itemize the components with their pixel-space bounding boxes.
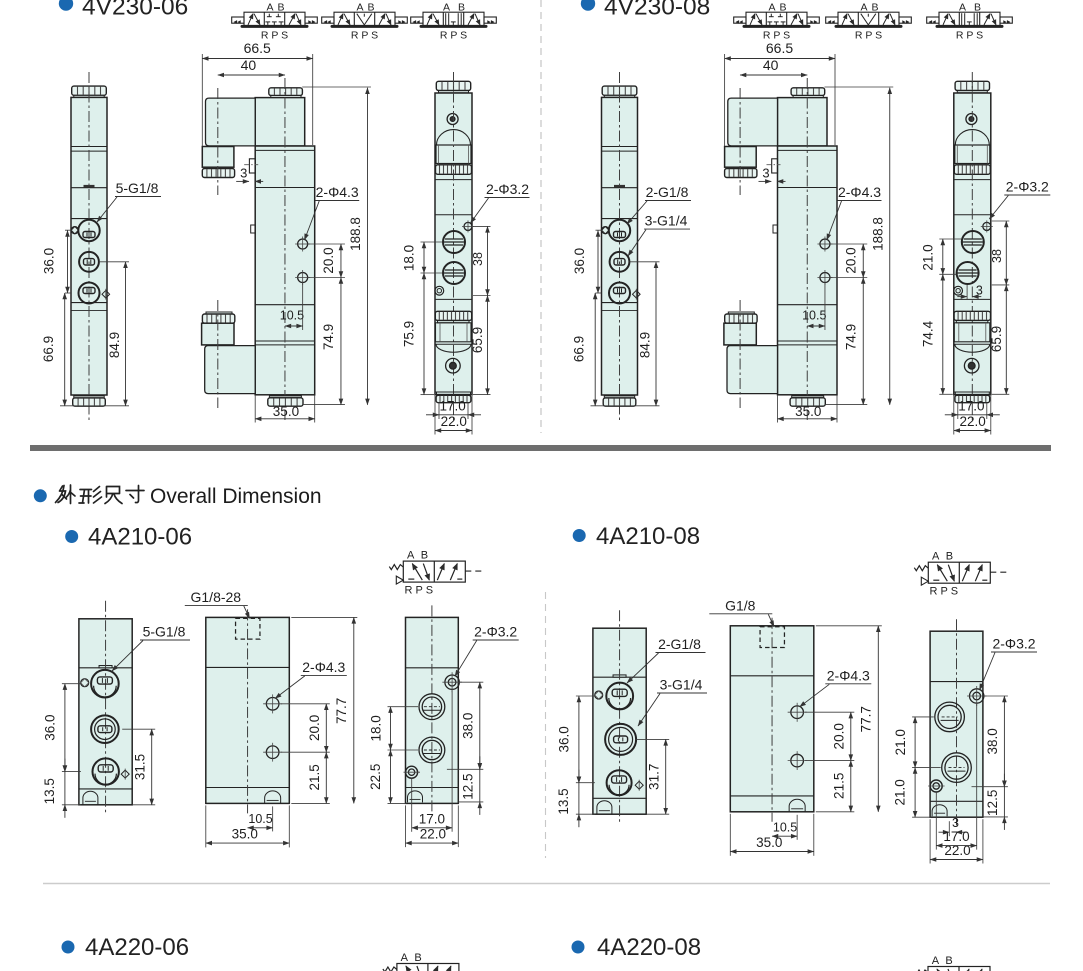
svg-text:A: A: [959, 1, 966, 13]
svg-text:40: 40: [763, 57, 779, 73]
svg-text:84.9: 84.9: [107, 332, 122, 358]
svg-text:17.0: 17.0: [439, 399, 465, 414]
svg-text:B: B: [367, 1, 374, 13]
svg-text:22.0: 22.0: [420, 827, 446, 842]
svg-text:2-Φ4.3: 2-Φ4.3: [838, 184, 881, 200]
svg-text:A: A: [768, 1, 775, 13]
svg-text:75.9: 75.9: [402, 321, 417, 347]
svg-text:13.5: 13.5: [556, 788, 571, 814]
svg-text:G1/8: G1/8: [725, 597, 756, 613]
svg-text:R P S: R P S: [440, 29, 467, 41]
svg-text:84.9: 84.9: [638, 332, 653, 358]
svg-text:4A220-08: 4A220-08: [597, 934, 701, 961]
svg-text:R P S: R P S: [855, 29, 882, 41]
svg-text:B: B: [974, 1, 981, 13]
svg-text:5-G1/8: 5-G1/8: [116, 180, 159, 196]
svg-text:2-Φ3.2: 2-Φ3.2: [486, 181, 529, 197]
svg-text:17.0: 17.0: [419, 811, 445, 826]
svg-text:B: B: [277, 1, 284, 13]
svg-text:35.0: 35.0: [273, 404, 299, 419]
svg-text:4A220-06: 4A220-06: [85, 934, 189, 961]
svg-text:2-Φ4.3: 2-Φ4.3: [302, 659, 345, 675]
svg-text:65.9: 65.9: [989, 326, 1004, 352]
svg-text:35.0: 35.0: [795, 404, 821, 419]
svg-text:3: 3: [240, 166, 247, 181]
svg-text:A: A: [266, 1, 273, 13]
svg-text:R P S: R P S: [956, 29, 983, 41]
svg-text:B: B: [871, 1, 878, 13]
svg-text:18.0: 18.0: [369, 715, 384, 741]
svg-text:18.0: 18.0: [402, 245, 417, 271]
svg-text:2-G1/8: 2-G1/8: [646, 184, 689, 200]
svg-text:R P S: R P S: [351, 29, 378, 41]
svg-text:13.5: 13.5: [42, 778, 57, 804]
svg-text:74.9: 74.9: [843, 324, 858, 350]
svg-text:12.5: 12.5: [460, 773, 475, 799]
svg-text:38.0: 38.0: [460, 713, 475, 739]
svg-text:77.7: 77.7: [858, 706, 873, 732]
svg-text:35.0: 35.0: [232, 826, 258, 841]
svg-text:3: 3: [976, 284, 983, 298]
svg-text:Overall Dimension: Overall Dimension: [150, 485, 322, 508]
svg-text:10.5: 10.5: [773, 820, 797, 834]
svg-text:38.0: 38.0: [985, 728, 1000, 754]
svg-text:10.5: 10.5: [802, 309, 826, 323]
svg-text:2-Φ4.3: 2-Φ4.3: [827, 667, 870, 683]
svg-text:A: A: [407, 550, 415, 562]
svg-text:20.0: 20.0: [843, 247, 858, 273]
svg-text:66.5: 66.5: [766, 40, 793, 56]
svg-text:20.0: 20.0: [307, 715, 322, 741]
svg-text:22.0: 22.0: [441, 414, 467, 429]
svg-text:A: A: [443, 1, 450, 13]
svg-text:10.5: 10.5: [248, 812, 272, 826]
svg-text:65.9: 65.9: [470, 327, 485, 353]
svg-text:R P S: R P S: [930, 586, 959, 598]
svg-text:188.8: 188.8: [348, 217, 363, 251]
svg-text:21.5: 21.5: [831, 773, 846, 799]
svg-text:36.0: 36.0: [42, 248, 57, 274]
svg-text:10.5: 10.5: [280, 309, 304, 323]
svg-text:66.5: 66.5: [244, 40, 271, 56]
svg-text:66.9: 66.9: [572, 336, 587, 362]
svg-text:21.5: 21.5: [307, 764, 322, 790]
svg-text:17.0: 17.0: [943, 829, 969, 844]
svg-text:20.0: 20.0: [831, 723, 846, 749]
svg-text:3-G1/4: 3-G1/4: [645, 213, 688, 229]
svg-text:74.9: 74.9: [321, 324, 336, 350]
svg-text:4V230-06: 4V230-06: [82, 0, 188, 21]
svg-text:40: 40: [241, 57, 257, 73]
svg-text:35.0: 35.0: [756, 835, 782, 850]
svg-text:17.0: 17.0: [958, 399, 984, 414]
svg-text:B: B: [779, 1, 786, 13]
svg-text:5-G1/8: 5-G1/8: [143, 624, 186, 640]
svg-text:A: A: [932, 551, 940, 563]
svg-text:3-G1/4: 3-G1/4: [660, 677, 703, 693]
svg-text:4V230-08: 4V230-08: [604, 0, 710, 21]
svg-text:36.0: 36.0: [556, 726, 571, 752]
svg-text:B: B: [458, 1, 465, 13]
svg-text:B: B: [946, 551, 953, 563]
svg-text:22.5: 22.5: [368, 764, 383, 790]
svg-text:A: A: [401, 952, 409, 964]
svg-text:22.0: 22.0: [959, 414, 985, 429]
svg-text:2-Φ3.2: 2-Φ3.2: [474, 624, 517, 640]
svg-text:2-Φ3.2: 2-Φ3.2: [992, 636, 1035, 652]
svg-text:74.4: 74.4: [920, 320, 935, 347]
svg-text:21.0: 21.0: [893, 779, 908, 805]
svg-text:12.5: 12.5: [985, 790, 1000, 816]
svg-text:20.0: 20.0: [321, 247, 336, 273]
svg-text:77.7: 77.7: [334, 698, 349, 724]
svg-text:B: B: [414, 952, 421, 964]
svg-text:R P S: R P S: [405, 584, 434, 596]
svg-text:38: 38: [471, 252, 485, 266]
svg-text:36.0: 36.0: [572, 248, 587, 274]
svg-text:3: 3: [952, 816, 959, 830]
svg-text:31.5: 31.5: [133, 754, 148, 780]
svg-text:22.0: 22.0: [944, 843, 970, 858]
svg-text:188.8: 188.8: [870, 217, 885, 251]
svg-text:2-G1/8: 2-G1/8: [658, 636, 701, 652]
svg-text:B: B: [421, 550, 428, 562]
svg-text:A: A: [860, 1, 867, 13]
svg-text:38: 38: [990, 249, 1004, 263]
svg-text:B: B: [945, 955, 952, 967]
svg-text:2-Φ3.2: 2-Φ3.2: [1006, 179, 1049, 195]
svg-text:A: A: [356, 1, 363, 13]
svg-text:G1/8-28: G1/8-28: [191, 589, 242, 605]
svg-text:A: A: [932, 955, 940, 967]
svg-text:21.0: 21.0: [893, 729, 908, 755]
svg-text:21.0: 21.0: [920, 244, 935, 270]
svg-text:3: 3: [762, 166, 769, 181]
svg-text:4A210-06: 4A210-06: [88, 524, 192, 551]
svg-text:36.0: 36.0: [42, 715, 57, 741]
svg-text:31.7: 31.7: [647, 764, 662, 790]
svg-text:2-Φ4.3: 2-Φ4.3: [316, 184, 359, 200]
svg-text:66.9: 66.9: [41, 336, 56, 362]
svg-text:4A210-08: 4A210-08: [596, 523, 700, 550]
